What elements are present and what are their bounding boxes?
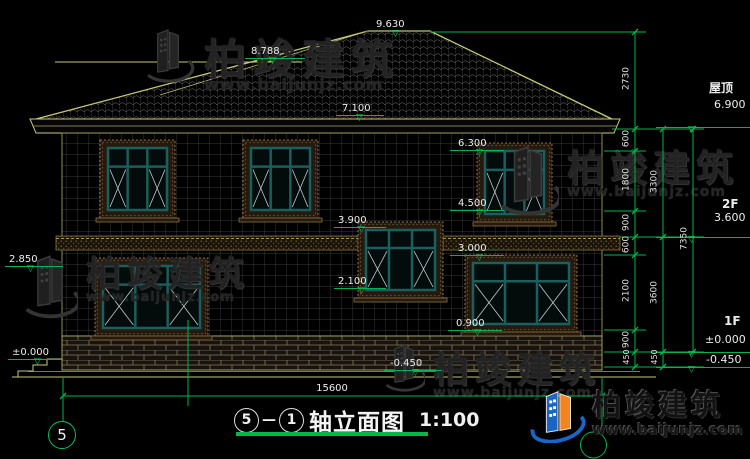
f1-label: 1F bbox=[724, 315, 741, 327]
dim-1800: 1800 bbox=[623, 158, 632, 202]
dim-600: 600 bbox=[623, 117, 632, 161]
elevation-triangle-icon: ▽ bbox=[356, 114, 363, 123]
base-elevation: -0.450 bbox=[706, 354, 741, 365]
elevation-marker-1f-window-sill: 0.900▽ bbox=[448, 330, 502, 331]
elevation-triangle-icon: ▽ bbox=[476, 209, 483, 218]
elevation-marker-left-belt: 2.850▽ bbox=[5, 266, 63, 267]
title-axis-start-bubble: 5 bbox=[234, 408, 259, 433]
brand-logo: 柏竣建筑 www.baijunjz.com bbox=[528, 385, 743, 443]
elevation-triangle-icon: ▽ bbox=[392, 30, 399, 39]
elevation-triangle-icon: ▽ bbox=[688, 126, 695, 135]
axis-bubble-5: 5 bbox=[48, 421, 76, 449]
elevation-triangle-icon: ▽ bbox=[358, 287, 365, 296]
elevation-triangle-icon: ▽ bbox=[269, 57, 276, 66]
elevation-triangle-icon: ▽ bbox=[688, 366, 695, 375]
elevation-marker-2f-window-top: 6.300▽ bbox=[450, 150, 504, 151]
elevation-marker-eave: 7.100▽ bbox=[336, 115, 384, 116]
elevation-marker-roof-right: ▽ bbox=[656, 127, 750, 128]
dim-450: 450 bbox=[623, 335, 631, 379]
title-scale: 1:100 bbox=[419, 409, 479, 431]
elevation-marker-ridge: 9.630▽ bbox=[366, 31, 432, 32]
elevation-marker-left-ground: ±0.000▽ bbox=[8, 359, 63, 360]
elevation-triangle-icon: ▽ bbox=[474, 329, 481, 338]
elevation-marker-base-right: ▽ bbox=[656, 367, 750, 368]
dim-450b: 450 bbox=[651, 335, 659, 379]
elevation-marker-belt: 3.000▽ bbox=[450, 255, 504, 256]
elevation-marker-stair-top: 3.900▽ bbox=[334, 227, 386, 228]
dim-2730: 2730 bbox=[623, 57, 632, 101]
brand-logo-site: www.baijunjz.com bbox=[592, 422, 743, 438]
dim-600b: 600 bbox=[623, 223, 632, 267]
elevation-triangle-icon: ▽ bbox=[688, 351, 695, 360]
elevation-marker-2f-right: ▽ bbox=[656, 237, 750, 238]
elevation-triangle-icon: ▽ bbox=[476, 254, 483, 263]
dim-7350: 7350 bbox=[681, 217, 690, 261]
brand-logo-text: 柏竣建筑 bbox=[592, 390, 743, 422]
dim-2100: 2100 bbox=[623, 269, 632, 313]
title-axis-end-bubble: 1 bbox=[279, 408, 304, 433]
elevation-triangle-icon: ▽ bbox=[358, 226, 365, 235]
dim-3600: 3600 bbox=[651, 271, 660, 315]
elevation-triangle-icon: ▽ bbox=[27, 265, 34, 274]
dim-total-width: 15600 bbox=[302, 384, 362, 394]
cad-elevation-screenshot: 柏竣建筑 www.baijunjz.com 柏竣建筑 www.baijunjz.… bbox=[0, 0, 750, 459]
title-underline bbox=[236, 432, 428, 436]
f2-elevation: 3.600 bbox=[714, 212, 746, 223]
elevation-marker-subridge: 8.788▽ bbox=[245, 58, 305, 59]
roof-label: 屋顶 bbox=[709, 82, 733, 94]
title-axis-separator: — bbox=[262, 412, 276, 428]
elevation-triangle-icon: ▽ bbox=[412, 369, 419, 378]
elevation-marker-2f-window-sill: 4.500▽ bbox=[450, 210, 504, 211]
dim-3300: 3300 bbox=[651, 160, 660, 204]
brand-logo-icon bbox=[528, 385, 586, 443]
elevation-triangle-icon: ▽ bbox=[34, 358, 41, 367]
elevation-marker-base-mid: -0.450▽ bbox=[384, 370, 442, 371]
elevation-triangle-icon: ▽ bbox=[476, 149, 483, 158]
f1-elevation: ±0.000 bbox=[705, 334, 746, 345]
roof-elevation: 6.900 bbox=[714, 99, 746, 110]
elevation-marker-stair-sill: 2.100▽ bbox=[334, 288, 386, 289]
f2-label: 2F bbox=[722, 198, 739, 210]
